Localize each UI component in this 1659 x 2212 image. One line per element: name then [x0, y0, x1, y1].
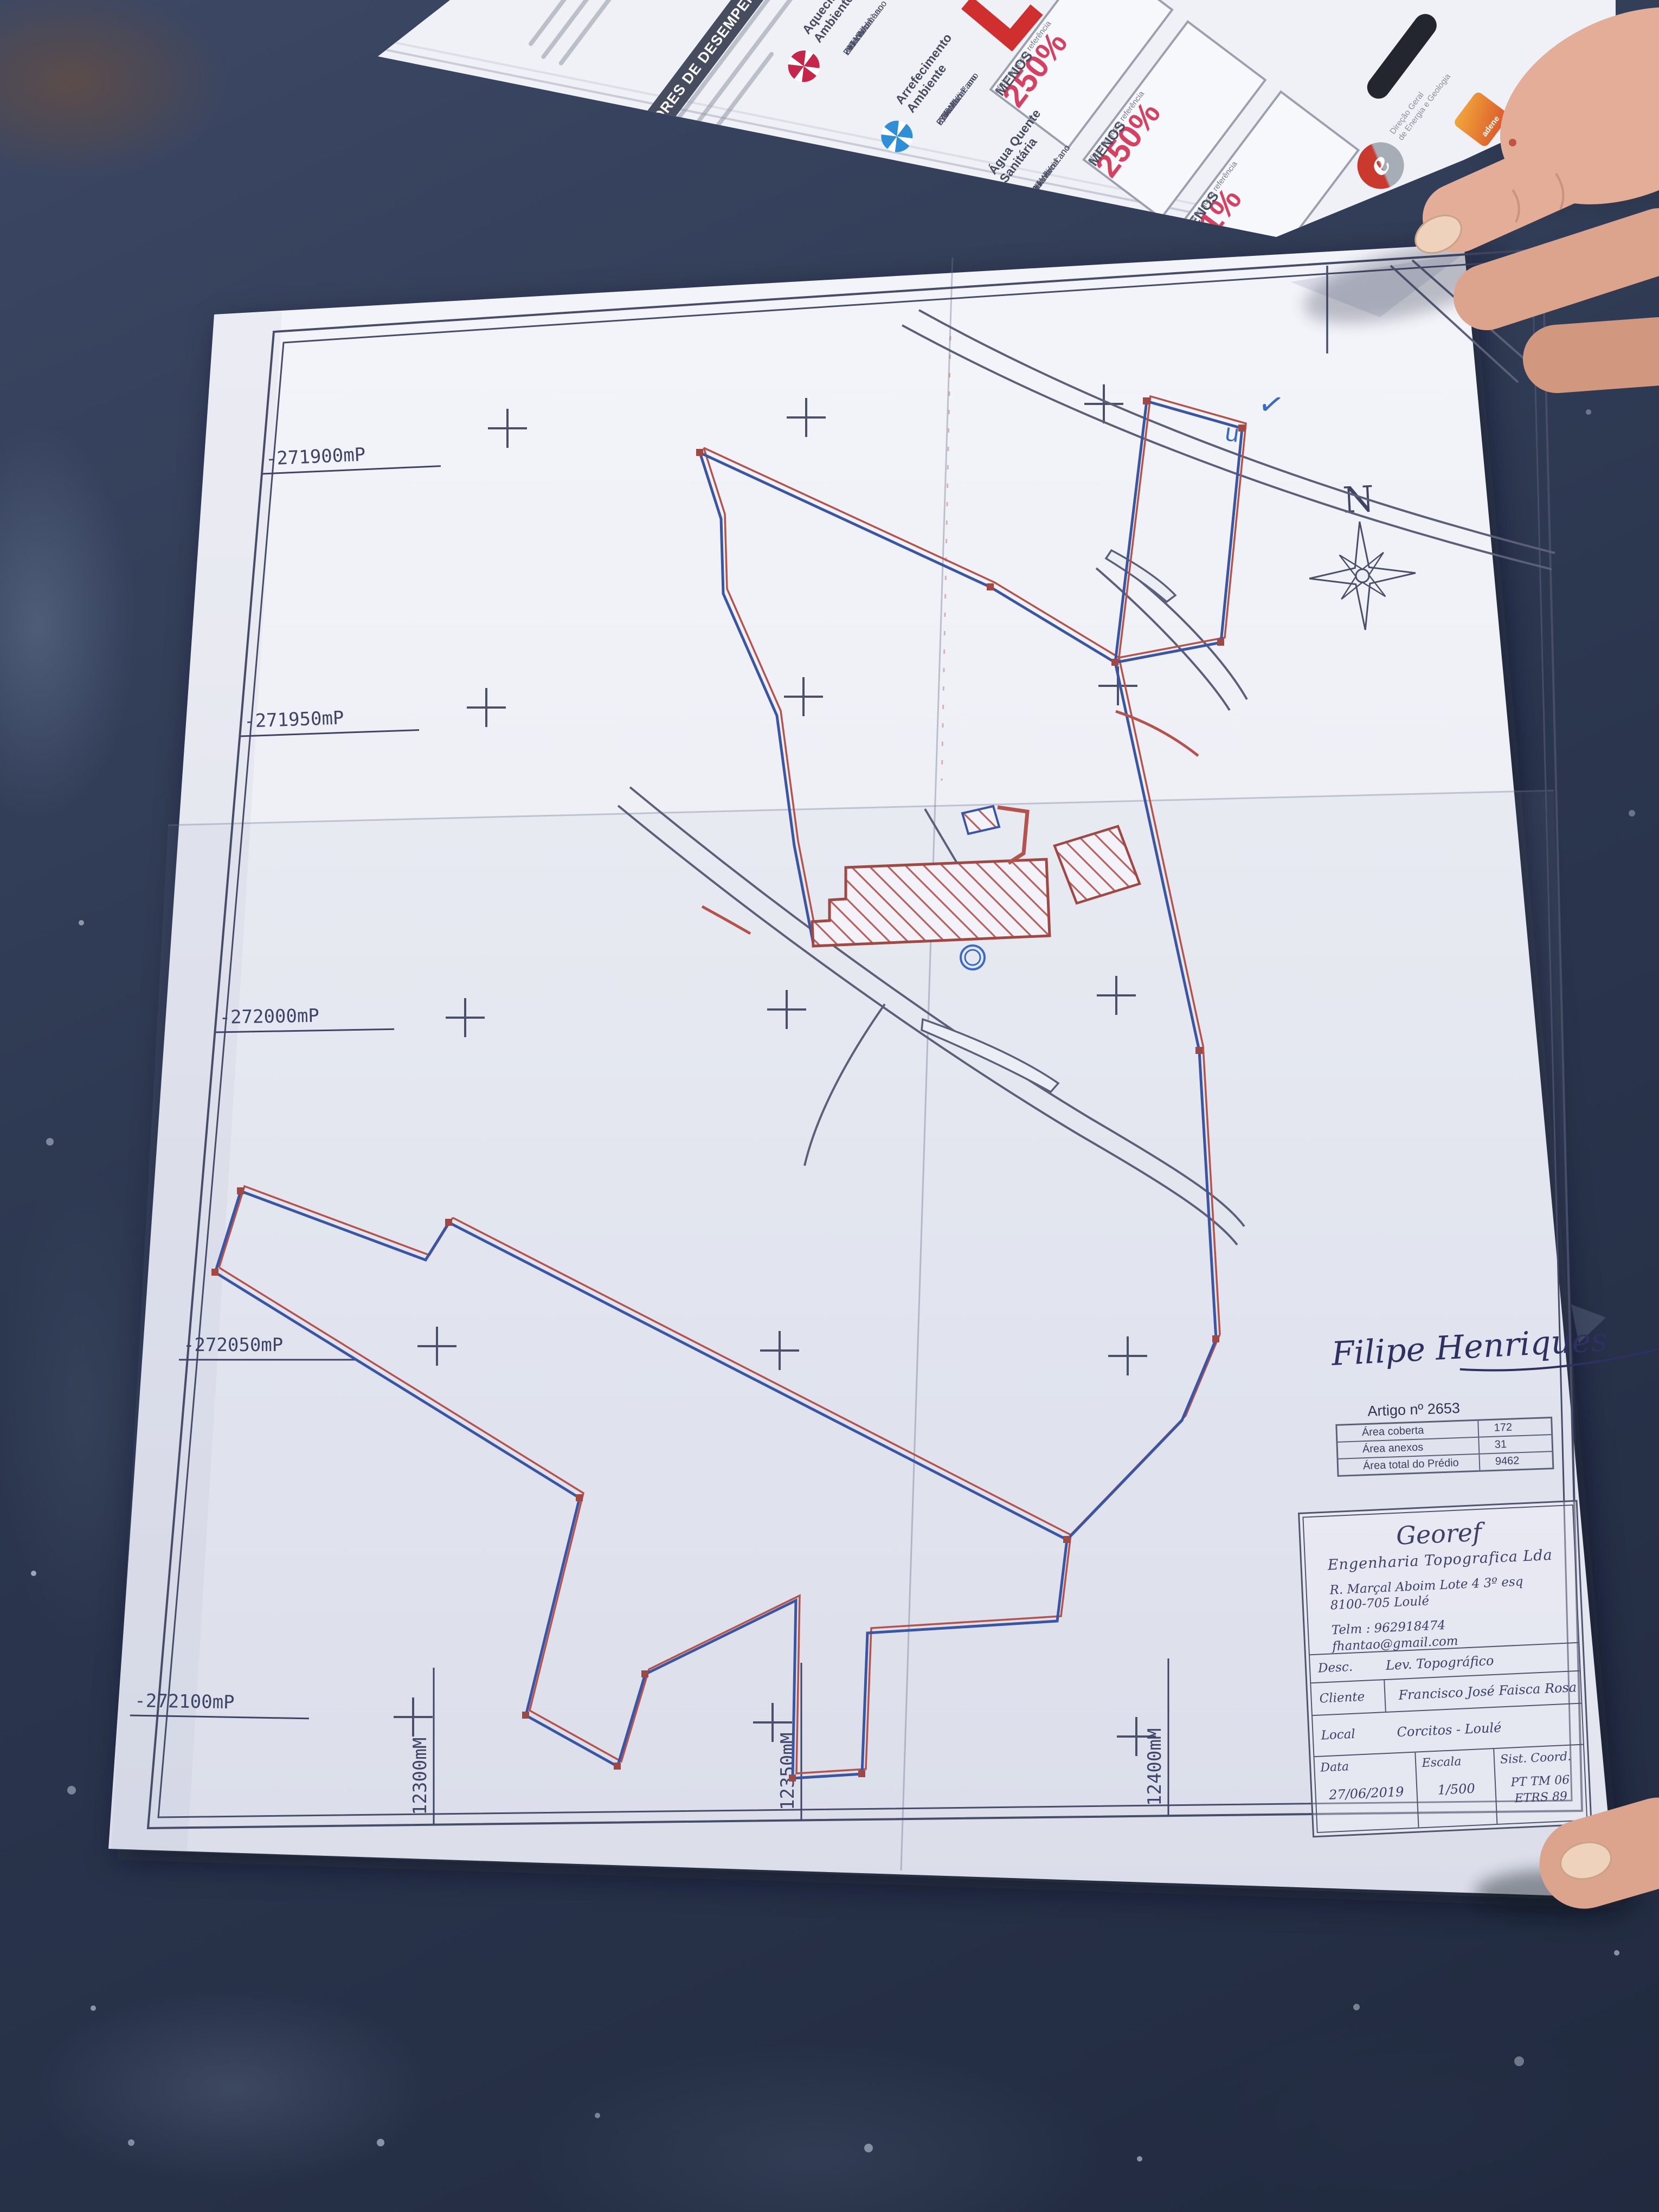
skin-speck: [1509, 139, 1516, 146]
middle-finger: [1487, 241, 1659, 297]
hand-top: [1409, 0, 1659, 359]
index-finger: [1457, 127, 1659, 218]
finger-bottom: [1557, 1838, 1659, 1883]
ring-finger: [1557, 351, 1659, 359]
hand-holding-paper: [0, 0, 1659, 2212]
